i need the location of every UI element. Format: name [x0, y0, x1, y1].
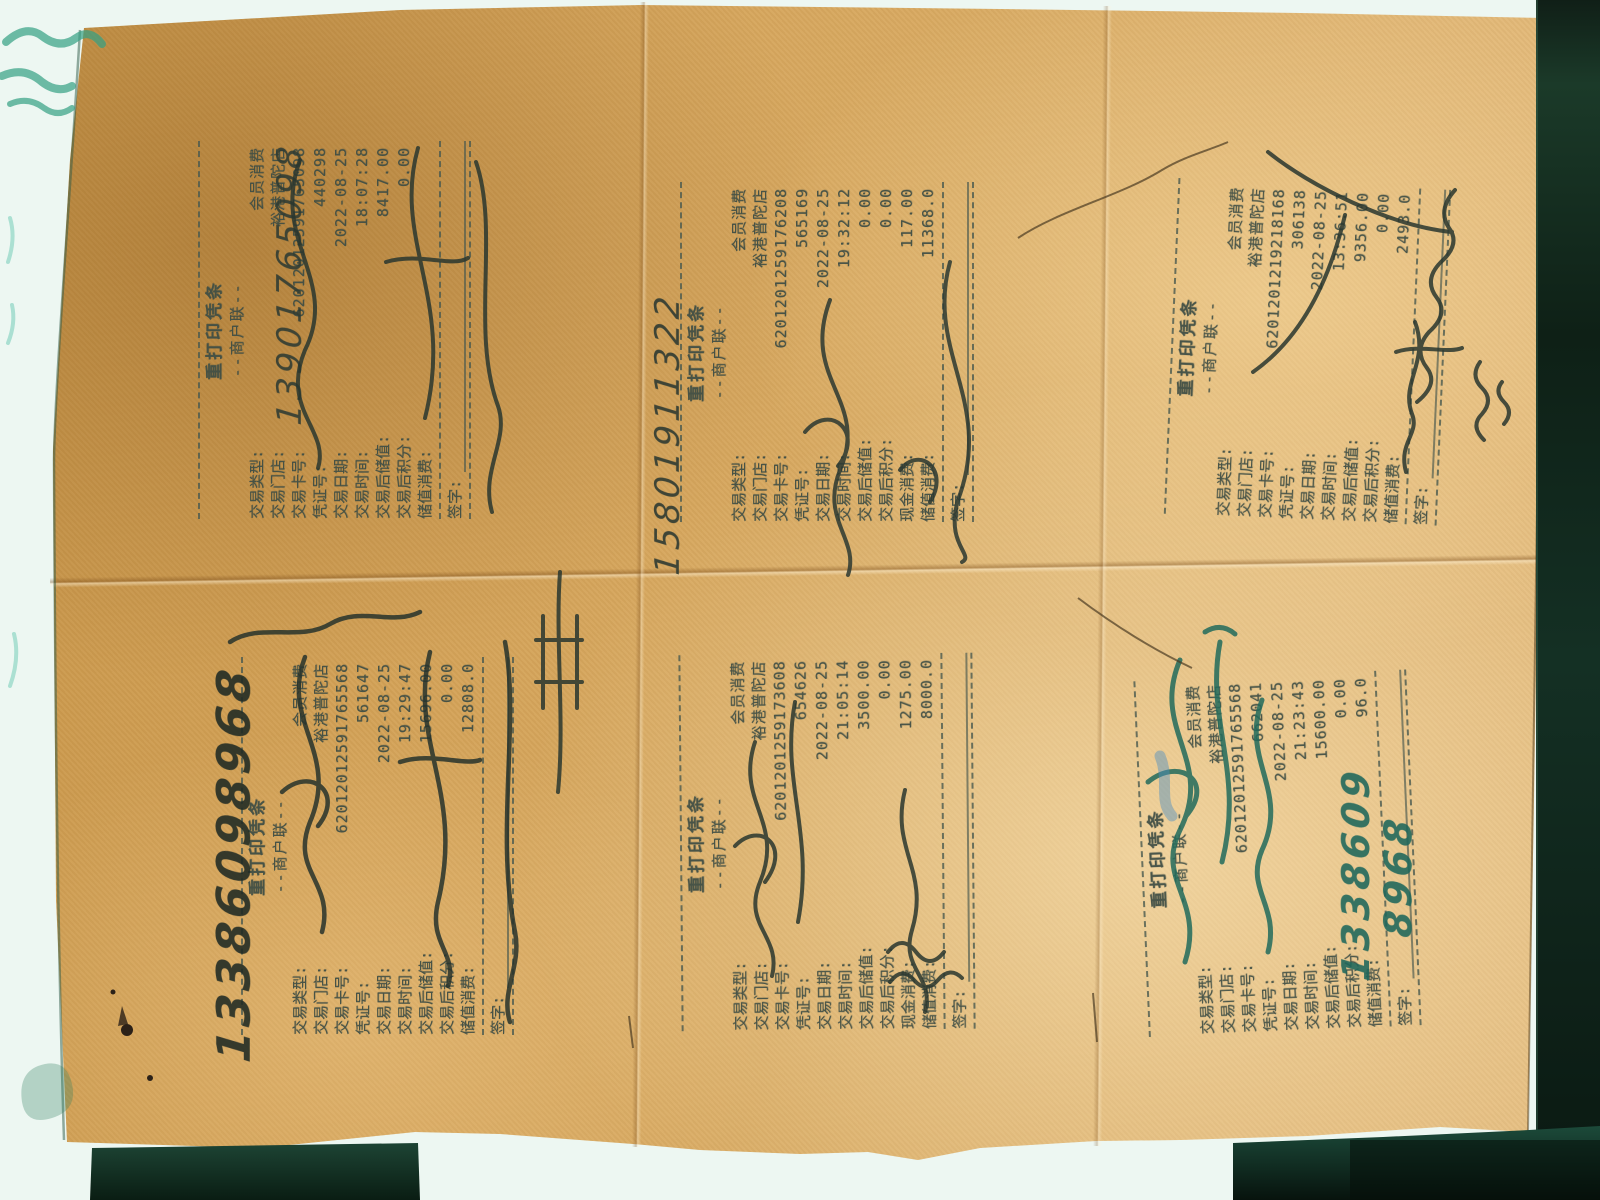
receipt-field-row: 储值消费:: [415, 141, 436, 519]
receipt-field-value: 8417.00: [373, 141, 394, 217]
receipt-field-label: 储值消费:: [919, 960, 941, 1029]
handwritten-phone-line: 1338609: [1336, 729, 1378, 983]
receipt-field-label: 交易类型:: [730, 962, 752, 1031]
receipt-bottom-border: [469, 141, 471, 519]
receipt-field-row: 交易日期:2022-08-25: [813, 182, 834, 522]
receipt-field-label: 交易类型:: [1213, 447, 1237, 517]
receipt-separator: [940, 653, 945, 1029]
receipt-field-row: 储值消费:11368.0: [918, 182, 939, 522]
receipt-field-label: 现金消费:: [897, 453, 918, 522]
receipt-field-label: 凭证号:: [1258, 977, 1281, 1032]
receipt-field-row: 交易后积分:0.00: [876, 182, 897, 522]
dark-background-corner: [1350, 1140, 1600, 1200]
dark-background-bottom-left: [90, 1143, 420, 1200]
photo-of-receipts: 重打印凭条--商户联--交易类型:会员消费交易门店:裕港普陀店交易卡号:6201…: [0, 0, 1600, 1200]
receipt-field-label: 交易类型:: [729, 453, 750, 522]
receipt-field-label: 交易时间:: [1300, 960, 1324, 1030]
receipt-field-label: 交易后积分:: [437, 951, 458, 1035]
receipt-field-value: 裕港普陀店: [311, 657, 332, 743]
receipt-field-value: 2022-08-25: [374, 657, 395, 763]
receipt-field-label: 交易卡号:: [1255, 449, 1279, 519]
receipt-sign-row: 签字:: [444, 141, 466, 519]
handwritten-phone-number: 13386098968: [1336, 729, 1420, 988]
receipt-field-label: 交易后储值:: [856, 945, 878, 1029]
receipt-field-label: 凭证号:: [792, 468, 813, 522]
receipt-field-label: 储值消费:: [458, 966, 479, 1035]
receipt-field-value: [415, 141, 436, 147]
receipt-field-label: 交易日期:: [1279, 961, 1303, 1031]
dark-background-bottom-right: [1233, 1126, 1600, 1200]
receipt-field-value: 2022-08-25: [811, 654, 833, 760]
receipt-sign-row: 签字:: [1410, 189, 1447, 526]
receipt-field-label: 交易卡号:: [1237, 963, 1261, 1033]
receipt-field-row: 交易类型:会员消费: [247, 141, 268, 519]
receipt-field-value: 0.00: [876, 182, 897, 228]
receipt-field-value: 会员消费: [247, 141, 268, 211]
receipt-field-label: 交易后积分:: [394, 435, 415, 519]
receipt-field-label: 储值消费:: [415, 450, 436, 519]
receipt-separator: [439, 141, 441, 519]
receipt-field-label: 凭证号:: [1276, 465, 1299, 520]
receipt-sign-label: 签字:: [487, 996, 509, 1035]
receipt-field-value: 会员消费: [290, 657, 311, 727]
receipt-top-border: [198, 141, 200, 519]
receipt-title: 重打印凭条: [683, 655, 710, 1031]
receipt-field-row: 交易后积分:0.00: [394, 141, 415, 519]
receipt-field-label: 交易日期:: [331, 450, 352, 519]
receipt-field-label: 交易日期:: [814, 961, 836, 1030]
receipt-sign-label: 签字:: [947, 483, 969, 522]
receipt-field-row: 交易后储值:15696.00: [416, 657, 437, 1035]
receipt-sign-row: 签字:: [945, 653, 970, 1029]
receipt-field-label: 交易时间:: [834, 453, 855, 522]
receipt-field-label: 交易门店:: [750, 453, 771, 522]
receipt-field-value: 18:07:28: [352, 141, 373, 227]
receipt-field-value: 62012012591765568: [332, 657, 353, 834]
receipt-field-value: 裕港普陀店: [750, 182, 771, 268]
receipt-sign-label: 签字:: [1410, 485, 1434, 525]
receipt-field-row: 交易卡号:62012012591765568: [332, 657, 353, 1035]
receipt-title: 重打印凭条: [203, 141, 227, 519]
receipt-field-label: 交易门店:: [1234, 448, 1258, 518]
handwritten-phone-number: 15801911322: [648, 273, 688, 577]
receipt-field-label: 交易时间:: [1318, 451, 1342, 521]
receipt-top-border: [678, 655, 683, 1031]
receipt-field-value: 6201201259176208: [771, 182, 792, 349]
receipt-field-value: 0.00: [437, 657, 458, 703]
receipt-field-value: 654626: [790, 654, 812, 720]
receipt-field-value: 15696.00: [416, 657, 437, 743]
receipt-field-label: 交易类型:: [1195, 965, 1219, 1035]
receipt-separator: [482, 657, 484, 1035]
receipt-field-value: 会员消费: [729, 182, 750, 252]
receipt-sign-label: 签字:: [444, 480, 466, 519]
receipt-field-label: 交易门店:: [751, 961, 773, 1030]
receipt-copy-line: --商户联--: [709, 182, 729, 522]
receipt-field-label: 交易时间:: [835, 961, 857, 1030]
receipt-stamp: 重打印凭条--商户联--交易类型:会员消费交易门店:裕港普陀店交易卡号:6201…: [677, 182, 979, 522]
receipt-field-value: 会员消费: [1182, 678, 1206, 749]
receipt-field-row: 凭证号:565169: [792, 182, 813, 522]
receipt-field-label: 交易门店:: [268, 450, 289, 519]
receipt-stamp: 重打印凭条--商户联--交易类型:会员消费交易门店:裕港普陀店交易卡号:6201…: [238, 657, 528, 1035]
receipt-field-label: 凭证号:: [353, 981, 374, 1035]
receipt-field-value: 2022-08-25: [331, 141, 352, 247]
receipt-field-label: 交易卡号:: [771, 453, 792, 522]
signature-line: [949, 653, 970, 982]
receipt-stamp: 重打印凭条--商户联--交易类型:会员消费交易门店:裕港普陀店交易卡号:6201…: [195, 141, 495, 519]
receipt-field-label: 交易后积分:: [877, 945, 899, 1029]
receipt-field-label: 储值消费:: [1381, 454, 1405, 524]
receipt-field-value: 1275.00: [895, 653, 917, 729]
receipt-field-row: 交易卡号:6201201259176208: [771, 182, 792, 522]
receipt-field-label: 交易日期:: [1297, 451, 1321, 521]
receipt-field-row: 储值消费:12808.0: [458, 657, 479, 1035]
receipt-sign-row: 签字:: [487, 657, 509, 1035]
receipt-field-row: 交易时间:19:32:12: [834, 182, 855, 522]
receipt-sign-label: 签字:: [1393, 986, 1417, 1026]
receipt-field-label: 现金消费:: [898, 960, 920, 1029]
receipt-field-value: 2493.0: [1392, 187, 1416, 254]
receipt-field-label: 交易后储值:: [373, 435, 394, 519]
receipt-field-label: 交易卡号:: [332, 966, 353, 1035]
receipt-field-label: 交易类型:: [247, 450, 268, 519]
signature-line: [1416, 189, 1447, 478]
receipt-field-label: 凭证号:: [310, 465, 331, 519]
receipt-field-value: 565169: [792, 182, 813, 248]
receipt-field-row: 凭证号:440298: [310, 141, 331, 519]
receipt-field-value: 11368.0: [918, 182, 939, 258]
handwritten-phone-number: 13901765098: [270, 143, 310, 427]
receipt-field-row: 交易类型:会员消费: [290, 657, 311, 1035]
receipt-field-label: 交易类型:: [290, 966, 311, 1035]
receipt-field-value: 19:29:47: [395, 657, 416, 743]
receipt-field-value: 0.00: [1329, 672, 1352, 719]
receipt-field-label: 交易门店:: [1216, 964, 1240, 1034]
receipt-field-row: 交易门店:裕港普陀店: [311, 657, 332, 1035]
receipt-field-row: 交易类型:会员消费: [729, 182, 750, 522]
receipt-field-value: 0.00: [394, 141, 415, 187]
receipt-field-value: 0.00: [874, 653, 895, 699]
receipt-field-value: 117.00: [897, 182, 918, 248]
receipt-field-label: 交易卡号:: [289, 450, 310, 519]
receipt-field-label: 储值消费:: [918, 453, 939, 522]
receipt-field-label: 交易卡号:: [772, 961, 794, 1030]
receipt-field-label: 交易日期:: [374, 966, 395, 1035]
receipt-field-value: 8000.0: [916, 653, 938, 719]
receipt-field-row: 交易时间:18:07:28: [352, 141, 373, 519]
receipt-field-row: 凭证号:561647: [353, 657, 374, 1035]
receipt-field-label: 交易时间:: [395, 966, 416, 1035]
receipt-title: 重打印凭条: [685, 182, 709, 522]
handwritten-phone-line: 8968: [1378, 733, 1420, 987]
receipt-field-row: 交易日期:2022-08-25: [374, 657, 395, 1035]
handwritten-phone-number: 13386098968: [207, 659, 261, 1065]
receipt-field-value: 6201201259173608: [769, 654, 791, 821]
receipt-field-row: 交易后储值:0.00: [855, 182, 876, 522]
receipt-bottom-border: [512, 657, 514, 1035]
receipt-sign-label: 签字:: [948, 990, 970, 1029]
receipt-field-value: 裕港普陀店: [748, 654, 770, 740]
receipt-field-value: 0.00: [1372, 187, 1395, 234]
receipt-field-label: 交易时间:: [352, 450, 373, 519]
receipt-field-value: 440298: [310, 141, 331, 207]
receipt-field-value: 19:32:12: [834, 182, 855, 268]
receipt-field-row: 储值消费:8000.0: [916, 653, 940, 1029]
signature-line: [491, 657, 509, 988]
receipt-field-label: 交易门店:: [311, 966, 332, 1035]
receipt-bottom-border: [972, 182, 974, 522]
receipt-field-label: 凭证号:: [793, 976, 814, 1030]
receipt-field-row: 交易后积分:0.00: [437, 657, 458, 1035]
receipt-field-value: 0.00: [855, 182, 876, 228]
receipt-separator: [942, 182, 944, 522]
receipt-field-row: 交易后储值:3500.00: [853, 654, 877, 1030]
scanner-margin-mark: [8, 218, 16, 686]
receipt-field-label: 交易日期:: [813, 453, 834, 522]
receipt-field-value: 会员消费: [727, 655, 749, 725]
receipt-field-label: 交易后储值:: [855, 438, 876, 522]
receipt-copy-line: --商户联--: [227, 141, 247, 519]
receipt-stamp: 重打印凭条--商户联--交易类型:会员消费交易门店:裕港普陀店交易卡号:6201…: [675, 653, 968, 1032]
receipt-field-row: 交易日期:2022-08-25: [331, 141, 352, 519]
receipt-field-row: 现金消费:117.00: [897, 182, 918, 522]
receipt-field-value: 96.0: [1350, 671, 1373, 718]
receipt-field-value: 2022-08-25: [813, 182, 834, 288]
receipt-copy-line: --商户联--: [270, 657, 290, 1035]
receipt-field-value: 3500.00: [853, 654, 875, 730]
receipt-field-value: 12808.0: [458, 657, 479, 733]
receipt-field-value: 306138: [1287, 183, 1311, 250]
dark-background-right: [1536, 0, 1600, 1200]
receipt-sign-row: 签字:: [947, 182, 969, 522]
receipt-field-row: 交易后储值:8417.00: [373, 141, 394, 519]
signature-line: [951, 182, 969, 475]
receipt-field-value: 21:05:14: [832, 654, 854, 740]
receipt-field-row: 交易门店:裕港普陀店: [750, 182, 771, 522]
receipt-field-label: 交易后储值:: [416, 951, 437, 1035]
receipt-field-label: 交易后积分:: [876, 438, 897, 522]
receipt-field-value: 9356.00: [1350, 186, 1374, 263]
receipt-field-value: 561647: [353, 657, 374, 723]
receipt-stamp: 重打印凭条--商户联--交易类型:会员消费交易门店:裕港普陀店交易卡号:6201…: [1161, 178, 1463, 526]
signature-line: [448, 141, 466, 472]
receipt-field-row: 交易时间:19:29:47: [395, 657, 416, 1035]
receipt-field-value: 662041: [1245, 676, 1269, 743]
